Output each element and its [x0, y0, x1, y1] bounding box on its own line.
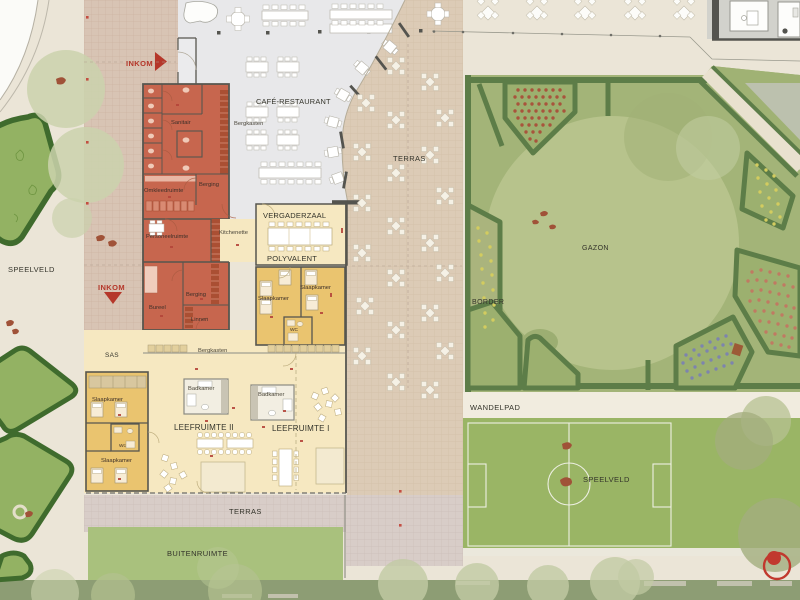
svg-text:GAZON: GAZON: [582, 245, 609, 252]
svg-text:BORDER: BORDER: [472, 299, 504, 306]
svg-text:Personeelruimte: Personeelruimte: [146, 234, 188, 240]
svg-text:SPEELVELD: SPEELVELD: [583, 475, 630, 484]
svg-text:Omkleedruimte: Omkleedruimte: [144, 188, 183, 194]
svg-text:Bergkasten: Bergkasten: [198, 348, 227, 354]
svg-text:Sanitair: Sanitair: [171, 120, 191, 126]
svg-text:POLYVALENT: POLYVALENT: [267, 254, 317, 263]
svg-text:SPEELVELD: SPEELVELD: [8, 265, 55, 274]
svg-text:Berging: Berging: [186, 292, 206, 298]
svg-text:VERGADERZAAL: VERGADERZAAL: [263, 211, 326, 220]
svg-text:Badkamer: Badkamer: [188, 386, 214, 392]
svg-text:Slaapkamer: Slaapkamer: [258, 296, 289, 302]
svg-text:BUITENRUIMTE: BUITENRUIMTE: [167, 549, 228, 558]
svg-text:Berging: Berging: [199, 182, 219, 188]
svg-text:TERRAS: TERRAS: [229, 507, 262, 516]
svg-text:INKOM: INKOM: [98, 283, 125, 292]
svg-text:Badkamer: Badkamer: [258, 392, 284, 398]
svg-text:LEEFRUIMTE II: LEEFRUIMTE II: [174, 423, 234, 432]
svg-text:Slaapkamer: Slaapkamer: [101, 458, 132, 464]
svg-text:Slaapkamer: Slaapkamer: [92, 397, 123, 403]
svg-text:CAFÉ-RESTAURANT: CAFÉ-RESTAURANT: [256, 97, 331, 106]
svg-text:Kitchenette: Kitchenette: [219, 230, 248, 236]
svg-text:LEEFRUIMTE I: LEEFRUIMTE I: [272, 424, 330, 433]
svg-text:Bergkasten: Bergkasten: [234, 121, 263, 127]
svg-text:WANDELPAD: WANDELPAD: [470, 403, 520, 412]
svg-text:TERRAS: TERRAS: [393, 154, 426, 163]
svg-text:Linnen: Linnen: [191, 317, 208, 323]
svg-text:WC: WC: [290, 327, 299, 333]
svg-text:Slaapkamer: Slaapkamer: [300, 285, 331, 291]
svg-text:INKOM: INKOM: [126, 59, 153, 68]
svg-text:Wc: Wc: [119, 443, 127, 449]
svg-text:Bureel: Bureel: [149, 305, 166, 311]
svg-text:SAS: SAS: [105, 352, 119, 359]
